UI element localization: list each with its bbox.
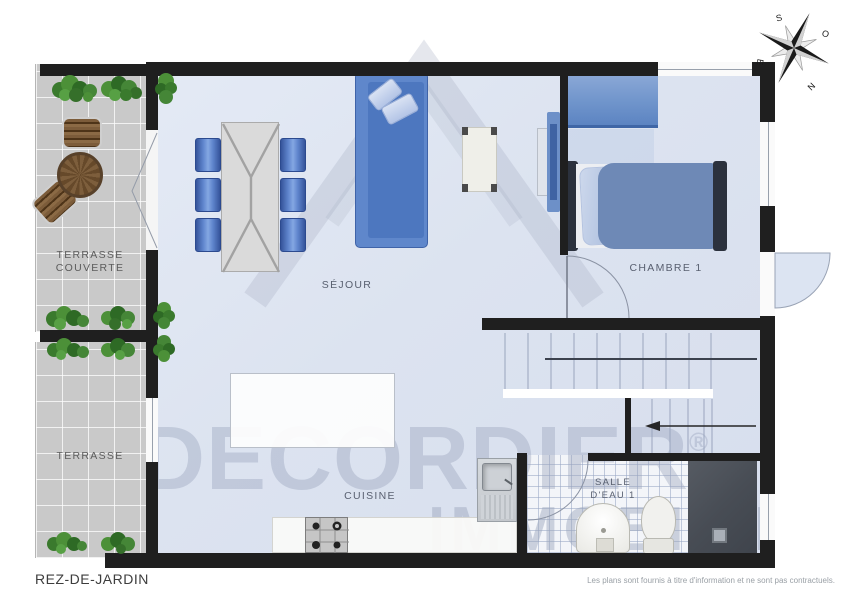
disclaimer-text: Les plans sont fournis à titre d'informa… bbox=[505, 576, 835, 585]
compass-north-label: N bbox=[806, 81, 818, 93]
room-label-terrasse: TERRASSE bbox=[50, 450, 130, 463]
room-label-terrasse-couverte: TERRASSE COUVERTE bbox=[50, 249, 130, 275]
floor-plan: DECORDIER® IMMOBILIER bbox=[0, 0, 848, 600]
floor-title: REZ-DE-JARDIN bbox=[35, 571, 149, 587]
bedroom-door-arc bbox=[567, 256, 629, 318]
room-label-cuisine: CUISINE bbox=[340, 490, 400, 503]
compass-west-label: O bbox=[821, 28, 831, 40]
room-label-chambre1: CHAMBRE 1 bbox=[628, 262, 704, 275]
bathroom-door-arc bbox=[528, 460, 588, 520]
compass-icon: S O E N bbox=[748, 4, 846, 100]
room-label-salle-eau: SALLE D'EAU 1 bbox=[582, 476, 644, 502]
compass-south-label: S bbox=[775, 12, 783, 23]
room-label-sejour: SÉJOUR bbox=[317, 279, 377, 292]
entrance-door-arc bbox=[775, 253, 830, 308]
door-arcs bbox=[0, 0, 848, 600]
french-door-leaves bbox=[132, 133, 157, 248]
compass-east-label: E bbox=[755, 58, 766, 66]
